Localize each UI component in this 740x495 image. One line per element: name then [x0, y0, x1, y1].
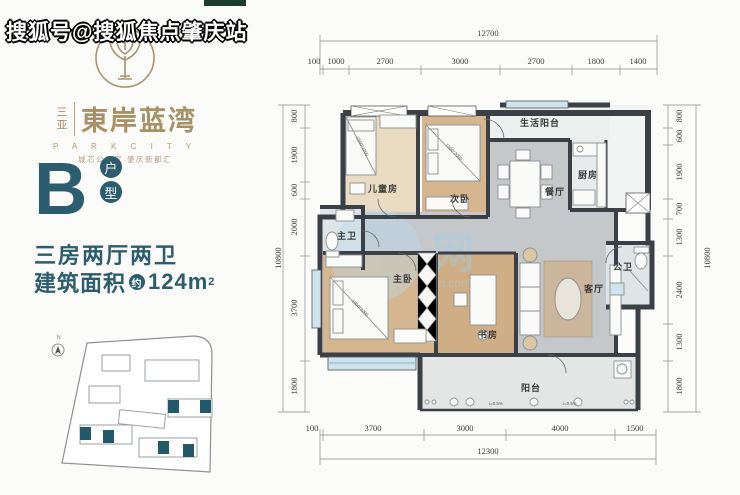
dim-right-6: 2400: [674, 268, 684, 312]
unit-badge-xing: 型: [100, 181, 122, 203]
room-label-second: 次卧: [450, 193, 470, 204]
dim-bottom-total: 12300: [466, 446, 510, 456]
dim-bottom-1: 100: [290, 423, 334, 433]
unit-area-text: 建筑面积 约 124m 2: [34, 266, 215, 298]
dim-right-5: 1300: [674, 215, 684, 259]
brand-logo: 三亚 東岸蓝湾 P A R K C I T Y 城芯公园家·肇庆新都汇: [40, 26, 210, 165]
dim-bottom-3: 3000: [443, 423, 487, 433]
dim-right-7: 1300: [674, 320, 684, 364]
dim-top-4: 3000: [438, 56, 482, 66]
dim-top-5: 2700: [514, 56, 558, 66]
room-label-living: 客厅: [583, 283, 604, 294]
dim-top-3: 2700: [363, 56, 407, 66]
unit-letter: B: [34, 152, 87, 226]
room-label-study: 书房: [478, 329, 498, 340]
unit-type-block: B 户 型: [34, 152, 254, 226]
left-panel: 三亚 東岸蓝湾 P A R K C I T Y 城芯公园家·肇庆新都汇 B 户 …: [0, 0, 265, 495]
site-plan: N: [42, 328, 237, 488]
dim-bottom-4: 4000: [538, 423, 582, 433]
dim-left-5: 3700: [289, 286, 299, 330]
room-label-master: 主卧: [393, 273, 413, 284]
slope-label-2: i=0.5%: [563, 401, 577, 406]
room-label-kitchen: 厨房: [578, 169, 598, 180]
dim-left-6: 1800: [289, 364, 299, 408]
dim-top-7: 1400: [616, 56, 660, 66]
plan-watermark-suffix: m.com: [435, 276, 471, 290]
area-approx-circle: 约: [129, 274, 145, 290]
room-label-balcony: 阳台: [521, 382, 541, 393]
area-sup: 2: [208, 276, 215, 288]
area-value: 124m: [148, 269, 208, 295]
compass-n: N: [57, 335, 61, 341]
dim-top-total: 12700: [466, 28, 510, 38]
dim-left-1: 800: [289, 94, 299, 138]
dim-bottom-2: 3700: [351, 423, 395, 433]
room-label-dining: 餐厅: [544, 186, 565, 197]
dim-right-total: 10800: [702, 236, 712, 280]
floor-plan: 网 m.com: [248, 25, 740, 493]
top-strip: [204, 0, 246, 6]
unit-badge-hu: 户: [100, 156, 122, 178]
room-label-children: 儿童房: [367, 183, 398, 194]
dim-left-total: 10800: [273, 236, 283, 280]
area-prefix: 建筑面积: [34, 266, 126, 298]
room-label-master-bath: 主卫: [337, 230, 357, 241]
sohu-watermark-text: 搜狐号@搜狐焦点肇庆站: [6, 16, 247, 46]
room-label-service-balcony: 生活阳台: [520, 117, 560, 128]
room-label-guest-bath: 公卫: [613, 262, 633, 272]
slope-label-1: i=0.5%: [489, 401, 503, 406]
dim-left-4: 2000: [289, 205, 299, 249]
dim-top-2: 1000: [314, 56, 358, 66]
logo-name: 東岸蓝湾: [81, 99, 197, 138]
dim-bottom-5: 1500: [613, 423, 657, 433]
logo-city: 三亚: [53, 102, 75, 136]
dim-right-8: 1800: [674, 364, 684, 408]
dim-top-6: 1800: [574, 56, 618, 66]
